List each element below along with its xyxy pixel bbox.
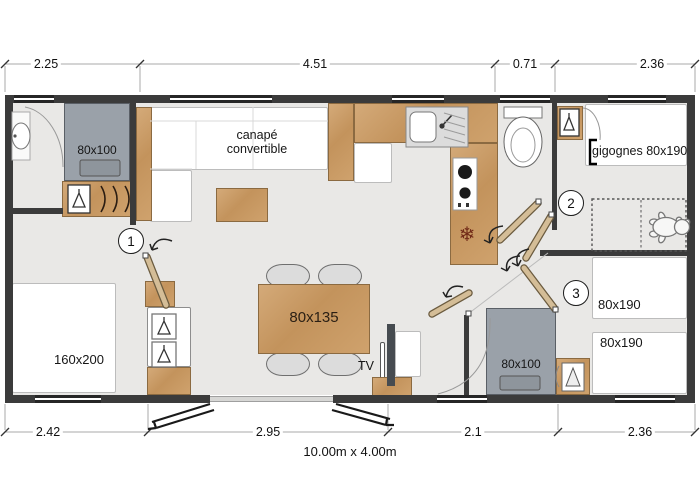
fridge-snowflake-icon: ❄ xyxy=(452,222,482,247)
bedside-unit xyxy=(145,281,175,307)
wall-right xyxy=(687,95,695,403)
plan-size-title: 10.00m x 4.00m xyxy=(303,444,396,459)
label-tv: TV xyxy=(354,359,378,373)
window-icon xyxy=(170,95,272,103)
wardrobe-bedroom1 xyxy=(147,307,191,367)
tv-wall-panel xyxy=(387,324,395,386)
sofa-seat-corner xyxy=(150,170,192,222)
window-icon xyxy=(35,395,101,403)
label-dining-table: 80x135 xyxy=(262,310,366,327)
dim-bottom-3: 2.1 xyxy=(461,425,484,439)
coffee-table xyxy=(216,188,268,222)
floor-plan: ❄ xyxy=(0,0,700,500)
label-bed-single-2: 80x190 xyxy=(600,336,660,351)
dim-top-1: 2.25 xyxy=(31,57,61,71)
shower-second xyxy=(486,308,556,395)
dim-bottom-2: 2.95 xyxy=(253,425,283,439)
dim-top-2: 4.51 xyxy=(300,57,330,71)
window-icon xyxy=(14,95,54,103)
tv-shelf xyxy=(395,331,421,377)
dim-bottom-4: 2.36 xyxy=(625,425,655,439)
dim-top-4: 2.36 xyxy=(637,57,667,71)
shower-master xyxy=(64,103,130,181)
dining-chair xyxy=(266,352,310,376)
window-icon xyxy=(608,95,666,103)
kitchen-lower-cabinet xyxy=(354,143,392,183)
wall-bathroom-living xyxy=(130,103,136,225)
window-icon xyxy=(392,95,444,103)
window-icon xyxy=(615,395,675,403)
entry-door-glazed xyxy=(437,395,487,403)
room-number-3: 3 xyxy=(563,280,589,306)
wall-left xyxy=(5,95,13,403)
wall-top xyxy=(5,95,695,103)
wall-room2-room3 xyxy=(540,250,687,256)
wardrobe-room2 xyxy=(557,106,583,140)
label-shower-second: 80x100 xyxy=(488,358,554,372)
kitchen-tall-cabinet xyxy=(328,103,354,181)
dim-top-3: 0.71 xyxy=(510,57,540,71)
room-number-1: 1 xyxy=(118,228,144,254)
label-sofa: canapé convertible xyxy=(210,128,304,156)
room-number-3-text: 3 xyxy=(572,286,580,301)
kitchen-counter-top xyxy=(354,103,498,143)
label-bed-master: 160x200 xyxy=(38,353,120,368)
label-bed-trundle: gigognes 80x190 xyxy=(592,144,688,158)
dim-bottom-1: 2.42 xyxy=(33,425,63,439)
room-number-1-text: 1 xyxy=(127,234,135,249)
sofa-armrest xyxy=(136,107,152,221)
window-icon xyxy=(500,95,550,103)
bed-master xyxy=(12,283,116,393)
sliding-bay-window xyxy=(210,396,333,402)
wall-hall-room3 xyxy=(464,315,469,395)
wall-bathroom-bedroom xyxy=(5,208,63,214)
label-shower-master: 80x100 xyxy=(66,144,128,158)
label-bed-single-1: 80x190 xyxy=(598,298,658,313)
room-number-2: 2 xyxy=(558,190,584,216)
wardrobe-bathroom xyxy=(62,181,132,217)
washbasin-cabinet-room3 xyxy=(556,358,590,395)
drawers-bedroom1 xyxy=(147,367,191,395)
wall-wc-room2 xyxy=(552,103,557,230)
room-number-2-text: 2 xyxy=(567,196,575,211)
